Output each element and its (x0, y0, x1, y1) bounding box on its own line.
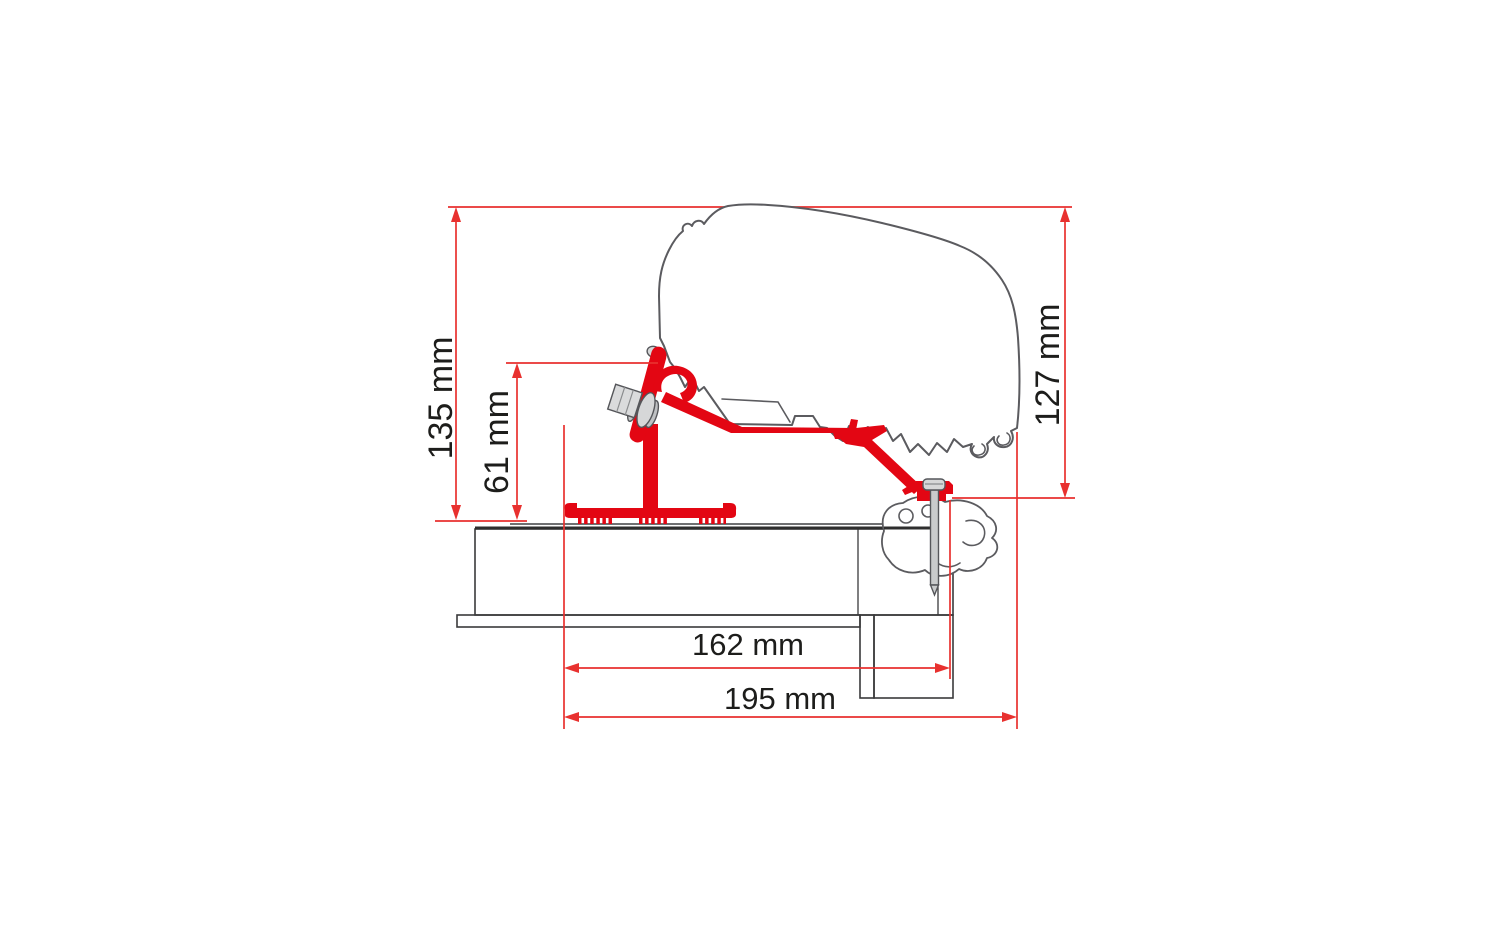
arrow-127-bottom (1060, 483, 1070, 498)
screw-shaft (931, 490, 939, 585)
arrow-162-left (564, 663, 579, 673)
arrow-61-bottom (512, 505, 522, 520)
dim-label-162: 162 mm (692, 627, 804, 662)
arrow-127-top (1060, 207, 1070, 222)
awning-rail-profile (882, 496, 997, 575)
bracket-post (643, 424, 658, 508)
arrow-195-right (1002, 712, 1017, 722)
wall-panel (874, 615, 953, 698)
roof-structure (457, 524, 956, 698)
adapter-technical-diagram: 135 mm 61 mm 127 mm 162 mm 195 mm (0, 0, 1500, 938)
arrow-135-bottom (451, 505, 461, 520)
arrow-195-left (564, 712, 579, 722)
dim-label-61: 61 mm (478, 390, 516, 494)
dim-label-195: 195 mm (724, 681, 836, 716)
ceiling-panel (457, 615, 860, 627)
arrow-135-top (451, 207, 461, 222)
inner-wall-board (860, 615, 874, 698)
dim-label-127: 127 mm (1029, 304, 1067, 427)
arrow-162-right (935, 663, 950, 673)
arrow-61-top (512, 363, 522, 378)
screw-tip (931, 585, 939, 595)
technical-diagram-page: 135 mm 61 mm 127 mm 162 mm 195 mm (0, 0, 1500, 938)
dim-label-135: 135 mm (422, 337, 460, 460)
